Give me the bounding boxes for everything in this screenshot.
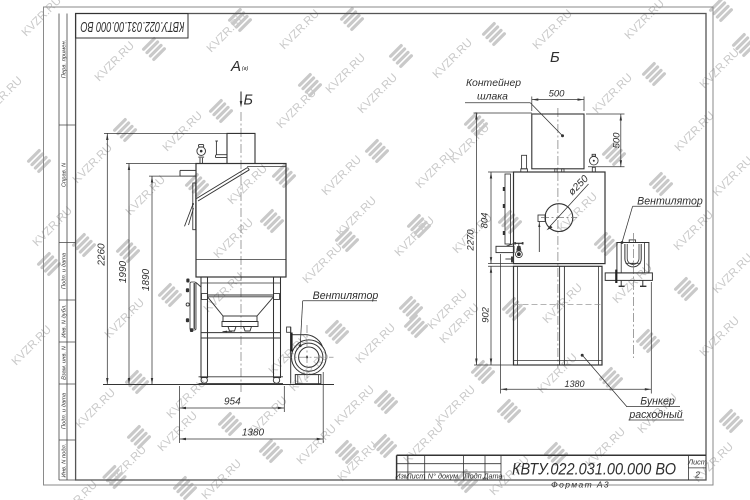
svg-text:Лист: Лист <box>687 458 707 467</box>
svg-text:2270: 2270 <box>465 229 476 252</box>
svg-text:2260: 2260 <box>96 243 107 267</box>
svg-text:КВТУ.022.031.00.000 ВО: КВТУ.022.031.00.000 ВО <box>512 460 676 479</box>
svg-text:Бункер: Бункер <box>640 396 675 408</box>
svg-text:1990: 1990 <box>118 260 129 283</box>
svg-text:Вентилятор: Вентилятор <box>637 196 703 208</box>
svg-text:КВТУ.022.031.00.000 ВО: КВТУ.022.031.00.000 ВО <box>81 18 185 34</box>
svg-text:Лист: Лист <box>406 472 426 481</box>
svg-text:А: А <box>230 58 241 75</box>
svg-text:Подп. и дата: Подп. и дата <box>62 392 68 429</box>
svg-text:Инв. N дубл.: Инв. N дубл. <box>62 304 68 338</box>
svg-text:954: 954 <box>224 397 241 408</box>
svg-text:500: 500 <box>549 88 566 99</box>
svg-text:Инв. N подл.: Инв. N подл. <box>62 444 68 478</box>
svg-text:500: 500 <box>611 132 622 149</box>
svg-text:Взам. инв. N: Взам. инв. N <box>62 345 68 380</box>
svg-text:Дата: Дата <box>482 472 502 481</box>
svg-text:1380: 1380 <box>564 379 584 389</box>
svg-text:Контейнер: Контейнер <box>466 78 521 89</box>
svg-text:расходный: расходный <box>628 409 682 421</box>
svg-text:шлака: шлака <box>477 92 508 103</box>
svg-text:Вентилятор: Вентилятор <box>313 290 379 302</box>
svg-text:2: 2 <box>694 470 700 480</box>
svg-text:Справ. N: Справ. N <box>62 162 68 187</box>
svg-text:Перв. примен.: Перв. примен. <box>62 40 68 79</box>
svg-text:Подп.: Подп. <box>464 472 483 481</box>
svg-text:804: 804 <box>480 213 491 229</box>
svg-text:Формат А3: Формат А3 <box>551 479 610 489</box>
svg-text:(в): (в) <box>242 66 249 72</box>
svg-text:N° докум.: N° докум. <box>428 472 460 481</box>
svg-text:1380: 1380 <box>242 428 265 439</box>
svg-text:1890: 1890 <box>141 268 152 291</box>
svg-text:902: 902 <box>481 306 492 323</box>
svg-text:Б: Б <box>244 93 253 109</box>
svg-text:Б: Б <box>550 49 560 66</box>
svg-text:Подп. и дата: Подп. и дата <box>62 252 68 289</box>
